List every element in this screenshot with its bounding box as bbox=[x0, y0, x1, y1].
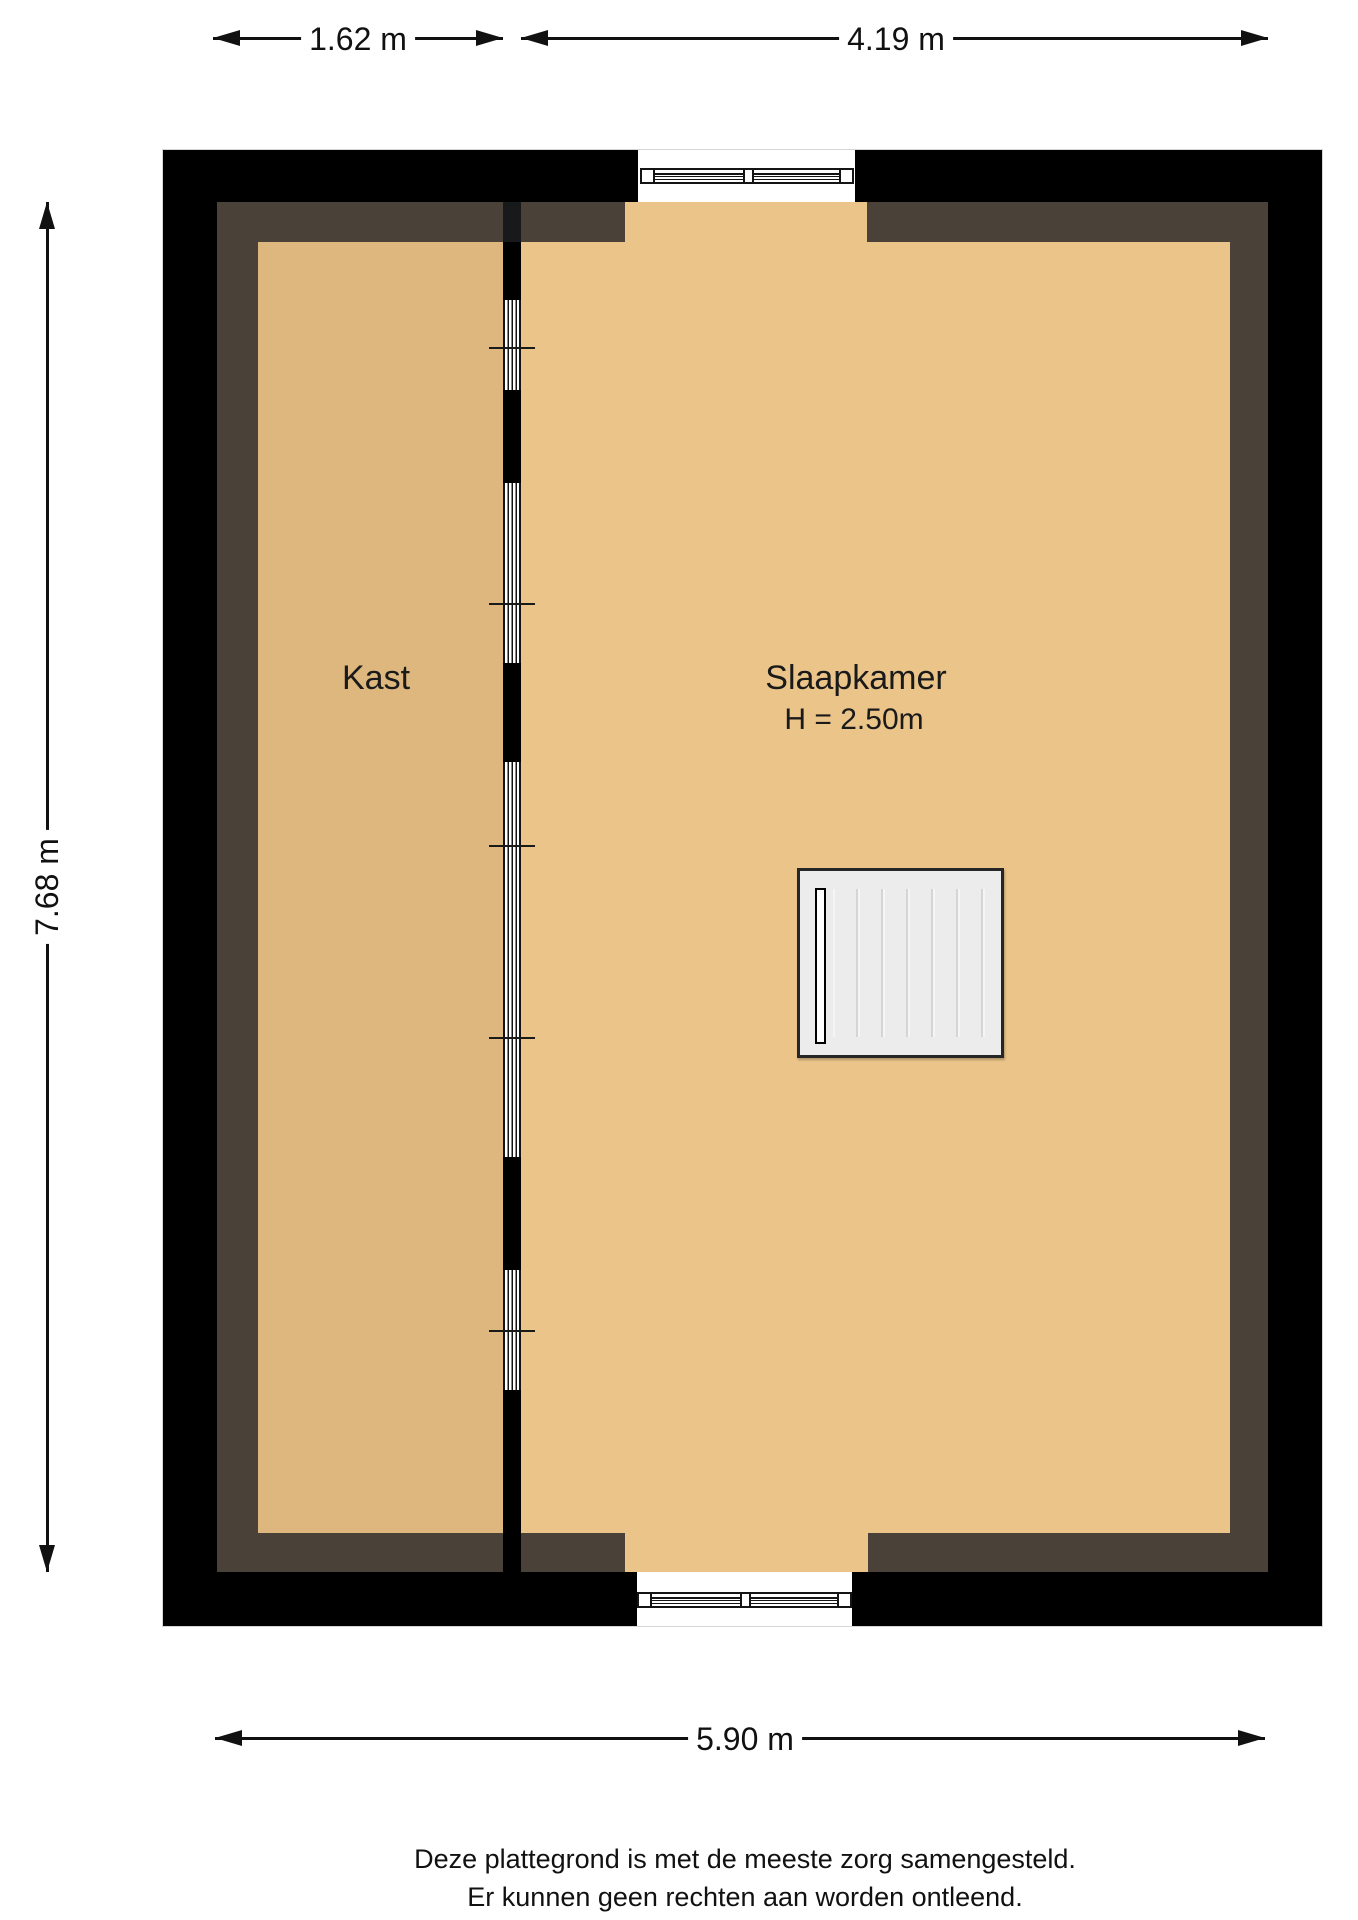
window-end-cap bbox=[839, 168, 854, 184]
interior-glass-wall bbox=[503, 202, 521, 1572]
stair-treads bbox=[833, 889, 998, 1037]
glass-joint-tick bbox=[489, 845, 535, 847]
arrowhead-down-icon bbox=[39, 1545, 55, 1572]
floor-plan-page: 1.62 m 4.19 m 7.68 m bbox=[0, 0, 1358, 1920]
room-slaapkamer-label: Slaapkamer bbox=[765, 660, 946, 696]
glass-panel bbox=[503, 762, 521, 1157]
arrowhead-right-icon bbox=[1241, 30, 1268, 46]
window-mullion bbox=[740, 1592, 751, 1608]
window-top bbox=[640, 168, 854, 184]
glass-panel bbox=[503, 300, 521, 390]
arrowhead-right-icon bbox=[1238, 1730, 1265, 1746]
disclaimer-text: Deze plattegrond is met de meeste zorg s… bbox=[414, 1840, 1076, 1916]
arrowhead-up-icon bbox=[39, 202, 55, 229]
glass-panel bbox=[503, 483, 521, 663]
dimension-label-total-width: 5.90 m bbox=[688, 1723, 802, 1755]
window-bottom bbox=[637, 1592, 852, 1608]
floor-at-bottom-window bbox=[625, 1533, 868, 1572]
window-end-cap bbox=[837, 1592, 852, 1608]
disclaimer-line-1: Deze plattegrond is met de meeste zorg s… bbox=[414, 1840, 1076, 1878]
floor-at-top-window bbox=[625, 202, 867, 242]
disclaimer-line-2: Er kunnen geen rechten aan worden ontlee… bbox=[414, 1878, 1076, 1916]
dimension-label-total-height: 7.68 m bbox=[31, 830, 63, 944]
arrowhead-left-icon bbox=[213, 30, 240, 46]
window-mullion bbox=[743, 168, 754, 184]
window-end-cap bbox=[637, 1592, 652, 1608]
ceiling-height-label: H = 2.50m bbox=[784, 704, 923, 736]
dimension-label-slaapkamer-width: 4.19 m bbox=[839, 23, 953, 55]
wall-cap bbox=[503, 202, 521, 242]
arrowhead-right-icon bbox=[476, 30, 503, 46]
room-kast-label: Kast bbox=[342, 660, 410, 696]
dimension-label-kast-width: 1.62 m bbox=[301, 23, 415, 55]
arrowhead-left-icon bbox=[215, 1730, 242, 1746]
glass-joint-tick bbox=[489, 1330, 535, 1332]
arrowhead-left-icon bbox=[521, 30, 548, 46]
staircase bbox=[797, 868, 1004, 1058]
glass-joint-tick bbox=[489, 347, 535, 349]
room-kast-floor bbox=[258, 242, 503, 1533]
window-end-cap bbox=[640, 168, 655, 184]
glass-joint-tick bbox=[489, 603, 535, 605]
glass-joint-tick bbox=[489, 1037, 535, 1039]
stair-entry-marker bbox=[815, 888, 826, 1044]
